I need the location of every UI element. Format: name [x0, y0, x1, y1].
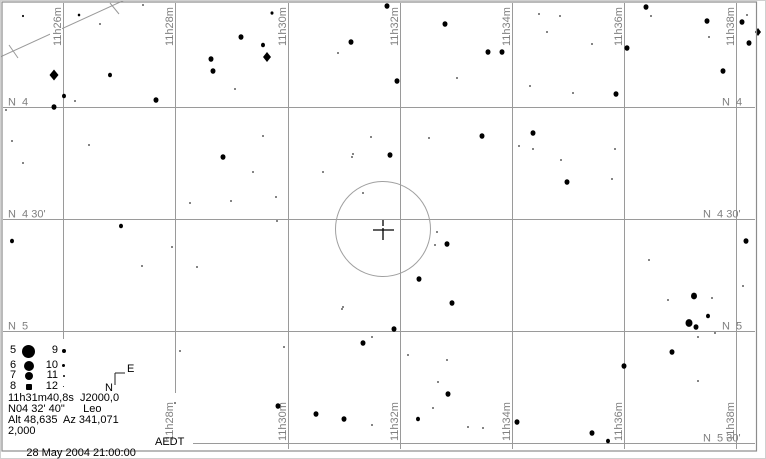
star — [572, 92, 574, 94]
star — [211, 68, 216, 74]
star — [480, 133, 485, 139]
magnitude-legend: 59610711812 — [0, 0, 150, 60]
star — [22, 162, 24, 164]
star — [276, 220, 278, 222]
star — [283, 346, 285, 348]
star-chart-canvas[interactable]: 11h26m11h28m11h28m11h30m11h30m11h32m11h3… — [0, 0, 766, 459]
star — [434, 244, 436, 246]
star — [342, 306, 344, 308]
star — [486, 49, 491, 55]
compass-east-label: E — [127, 363, 134, 375]
status-timezone: AEDT — [155, 437, 184, 448]
star — [697, 336, 699, 338]
star — [337, 52, 339, 54]
star — [174, 402, 176, 404]
star — [614, 148, 616, 150]
star — [74, 100, 76, 102]
legend-mag-label: 5 — [10, 345, 16, 356]
star — [351, 156, 353, 158]
dec-label-left: N 5 — [8, 321, 28, 333]
star — [341, 308, 343, 310]
ra-label-bottom: 11h32m — [389, 402, 401, 441]
star — [482, 427, 484, 429]
ra-label-top: 11h34m — [501, 7, 513, 46]
star — [407, 354, 409, 356]
star — [591, 43, 593, 45]
ra-label-top: 11h28m — [164, 7, 176, 46]
star — [445, 241, 450, 247]
star — [62, 94, 66, 98]
legend-mag-symbol — [22, 345, 35, 358]
star — [606, 439, 610, 443]
star — [565, 179, 570, 185]
status-readout: 11h31m40,8s J2000,0 N04 32' 40" Leo Alt … — [8, 393, 136, 448]
legend-mag-symbol — [62, 349, 66, 353]
star — [349, 39, 354, 45]
star — [667, 299, 669, 301]
ra-label-top: 11h32m — [389, 7, 401, 46]
legend-mag-symbol — [26, 384, 32, 390]
star — [262, 135, 264, 137]
star — [370, 136, 372, 138]
ra-label-top: 11h38m — [725, 7, 737, 46]
star — [261, 43, 265, 47]
star — [108, 73, 112, 77]
status-datetime: 28 May 2004 21:00:00 AEDT — [8, 437, 136, 448]
legend-mag-symbol — [24, 361, 34, 371]
star — [500, 49, 505, 55]
star — [437, 381, 439, 383]
star — [417, 276, 422, 282]
ra-label-bottom: 11h34m — [501, 402, 513, 441]
star — [221, 154, 226, 160]
legend-mag-label: 12 — [44, 381, 58, 392]
star — [179, 350, 181, 352]
status-field-size: 2,000 — [8, 426, 136, 437]
star — [234, 88, 236, 90]
dec-label-left: N 4 — [8, 97, 28, 109]
star — [740, 19, 745, 25]
ra-label-top: 11h36m — [613, 7, 625, 46]
star — [714, 332, 716, 334]
star — [395, 78, 400, 84]
star — [721, 68, 726, 74]
dec-label-left: N 4 30' — [8, 209, 46, 221]
star — [742, 285, 744, 287]
star — [275, 196, 277, 198]
star — [532, 148, 534, 150]
star — [189, 202, 191, 204]
star — [559, 15, 561, 17]
star — [686, 319, 693, 327]
star — [314, 411, 319, 417]
star — [625, 45, 630, 51]
star-chart-window: 11h26m11h28m11h28m11h30m11h30m11h32m11h3… — [0, 0, 766, 459]
star — [371, 336, 373, 338]
star — [271, 11, 274, 14]
star — [694, 324, 699, 330]
star — [708, 36, 710, 38]
star — [529, 85, 531, 87]
star — [456, 77, 458, 79]
star — [388, 152, 393, 158]
legend-mag-label: 9 — [44, 345, 58, 356]
ra-label-top: 11h30m — [277, 7, 289, 46]
star — [196, 266, 198, 268]
star — [747, 40, 752, 46]
star — [706, 314, 710, 318]
star — [209, 56, 214, 62]
star — [436, 231, 438, 233]
star — [531, 130, 536, 136]
star — [546, 31, 548, 33]
star — [342, 416, 347, 422]
dec-label-right: N 4 30' — [703, 209, 741, 221]
star — [644, 4, 649, 10]
star — [648, 259, 650, 261]
star — [322, 171, 324, 173]
star — [10, 239, 14, 243]
legend-mag-label: 8 — [10, 381, 16, 392]
star — [392, 326, 397, 332]
star — [432, 407, 434, 409]
star — [467, 426, 469, 428]
star — [276, 403, 281, 409]
star — [352, 153, 354, 155]
status-datetime-text: 28 May 2004 21:00:00 — [26, 447, 135, 459]
dec-label-right: N 5 30' — [703, 433, 741, 445]
star — [416, 417, 420, 421]
star — [670, 349, 675, 355]
star — [446, 359, 448, 361]
star — [154, 97, 159, 103]
star — [385, 3, 390, 9]
star — [52, 104, 57, 110]
star — [11, 140, 13, 142]
dec-label-right: N 4 — [722, 97, 742, 109]
star — [5, 109, 7, 111]
star — [171, 246, 173, 248]
star — [450, 300, 455, 306]
star — [622, 363, 627, 369]
star — [611, 178, 613, 180]
star — [650, 15, 652, 17]
star — [590, 430, 595, 436]
star — [230, 200, 232, 202]
star — [371, 424, 373, 426]
star — [560, 159, 562, 161]
star — [744, 238, 749, 244]
star — [746, 14, 748, 16]
star — [697, 380, 699, 382]
star — [518, 145, 520, 147]
star — [443, 21, 448, 27]
ra-label-bottom: 11h36m — [613, 402, 625, 441]
legend-mag-symbol — [63, 375, 65, 377]
star — [239, 34, 244, 40]
star — [119, 224, 123, 228]
star — [362, 192, 364, 194]
legend-mag-symbol — [25, 372, 33, 380]
star — [705, 18, 710, 24]
star — [252, 171, 254, 173]
star — [361, 340, 366, 346]
star — [711, 297, 713, 299]
star — [614, 91, 619, 97]
star — [515, 419, 520, 425]
star — [446, 391, 451, 397]
star — [88, 144, 90, 146]
star — [141, 265, 143, 267]
star — [691, 293, 697, 300]
star — [538, 13, 540, 15]
dec-label-right: N 5 — [722, 321, 742, 333]
star — [428, 137, 430, 139]
